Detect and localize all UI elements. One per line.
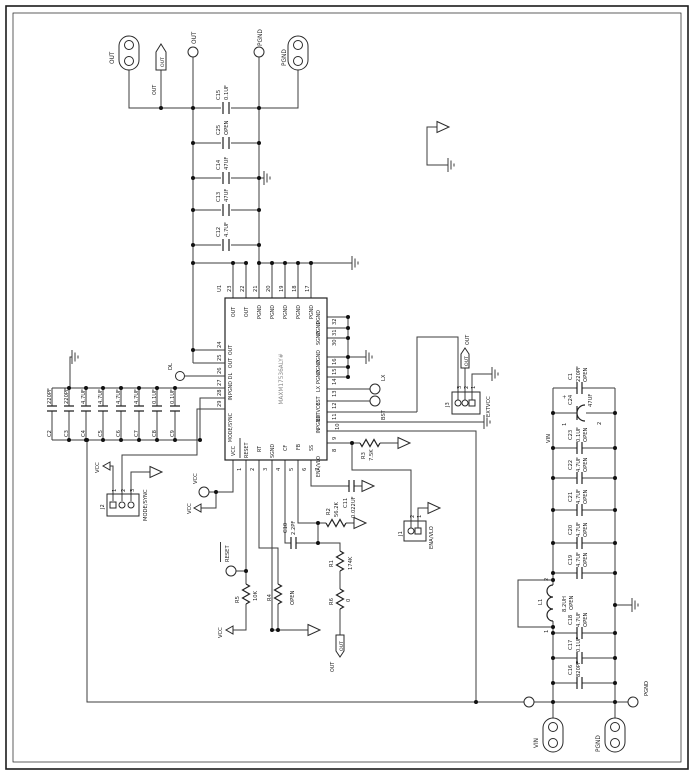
c20-val: 4.7UF: [576, 522, 582, 537]
ic-pin-name: IN: [316, 428, 322, 433]
c6-val: 4.7UF: [116, 389, 122, 404]
junction-dot: [191, 106, 195, 110]
c17-ref: C17: [568, 640, 574, 650]
ic-pin-name: RT: [257, 446, 263, 452]
junction-dot: [270, 261, 274, 265]
ic-pin-name: MODE/SYNC: [228, 412, 234, 442]
ic-pin-num: 29: [217, 400, 223, 407]
ic-pin-name: PGND: [283, 305, 289, 319]
c19-ref: C19: [568, 555, 574, 565]
ic-pin-num: 23: [227, 285, 233, 292]
ic-pin-num: 17: [305, 285, 311, 292]
junction-dot: [613, 508, 617, 512]
c8-val: 0.1UF: [152, 389, 158, 404]
junction-dot: [613, 446, 617, 450]
c13-val: 47UF: [224, 189, 230, 202]
r2-val: 56.2K: [334, 501, 340, 517]
junction-dot: [173, 438, 177, 442]
c16-ref: C16: [568, 665, 574, 675]
c12-val: 4.7UF: [224, 222, 230, 237]
r5-ref: R5: [235, 596, 241, 603]
ic-pin-num: 24: [217, 341, 223, 348]
ic-pin-name: OUT: [244, 307, 250, 317]
c23-val: 0.1UF: [576, 427, 582, 442]
junction-dot: [244, 261, 248, 265]
junction-dot: [346, 375, 350, 379]
header-j3-pin3-num: 3: [457, 386, 463, 389]
junction-dot: [551, 508, 555, 512]
ic-pin-num: 2: [250, 468, 256, 471]
schematic-svg: OUT PGND OUT OUT OUT PGND C15 0.1UF C25 …: [0, 0, 694, 775]
testpoint-lx-label: LX: [381, 374, 387, 381]
ic-pin-num: 18: [292, 285, 298, 292]
l1-val2: OPEN: [569, 596, 575, 610]
junction-dot: [474, 700, 478, 704]
ic-pin-name: IN: [228, 395, 234, 400]
junction-dot: [257, 176, 261, 180]
c25-val: OPEN: [224, 121, 230, 135]
c2-val: 220PF: [47, 388, 53, 404]
ic-pin-num: 32: [332, 318, 338, 325]
c6-ref: C6: [116, 430, 122, 437]
ic-pin-num: 15: [332, 368, 338, 375]
junction-dot: [551, 656, 555, 660]
ic-pin-num: 9: [332, 437, 338, 440]
ic-pin-num: 16: [332, 358, 338, 365]
junction-dot: [613, 656, 617, 660]
junction-dot: [191, 348, 195, 352]
c24-plus: +: [562, 395, 568, 399]
ic-pin-name: RESET: [244, 443, 250, 458]
junction-dot: [84, 438, 88, 442]
header-j1-label: ENA/VLO: [429, 526, 435, 549]
ic-pin-num: 30: [332, 339, 338, 346]
schematic-page: OUT PGND OUT OUT OUT PGND C15 0.1UF C25 …: [0, 0, 694, 775]
c18-ref: C18: [568, 615, 574, 625]
junction-dot: [137, 438, 141, 442]
ic-pin-name: LX: [316, 385, 322, 392]
c19-val2: OPEN: [583, 553, 589, 567]
header-j1-ref: J1: [398, 531, 404, 537]
c12-ref: C12: [216, 227, 222, 237]
junction-dot: [551, 681, 555, 685]
c4-val: 4.7UF: [81, 389, 87, 404]
testpoint-pgnd-label: PGND: [258, 29, 264, 46]
c23-val2: OPEN: [583, 428, 589, 442]
header-j1-pin2-num: 2: [410, 515, 416, 518]
ic-pin-num: 7: [315, 468, 321, 471]
ic-pin-name: PGND: [309, 305, 315, 319]
ic-pin-num: 3: [263, 468, 269, 471]
junction-dot: [257, 141, 261, 145]
c23-ref: C23: [568, 430, 574, 440]
pad-pgnd2-label: PGND: [596, 735, 602, 752]
junction-dot: [551, 700, 555, 704]
junction-dot: [119, 438, 123, 442]
c15-val: 0.1UF: [224, 85, 230, 100]
c16-val: 820PF: [576, 661, 582, 677]
junction-dot: [613, 700, 617, 704]
junction-dot: [191, 176, 195, 180]
c2-ref: C2: [47, 430, 53, 437]
header-j3-label: EXTVCC: [486, 396, 492, 417]
c11-val: 0.022UF: [351, 496, 357, 518]
junction-dot: [316, 541, 320, 545]
c14-val: 47UF: [224, 157, 230, 170]
c25-ref: C25: [216, 125, 222, 135]
junction-dot: [67, 438, 71, 442]
ic-pin-name: PGND: [257, 305, 263, 319]
vin-net-label: VIN: [546, 434, 552, 443]
header-j2-pin1-num: 1: [112, 489, 118, 492]
pad-pgnd-label: PGND: [282, 49, 288, 66]
junction-dot: [101, 438, 105, 442]
junction-dot: [551, 631, 555, 635]
junction-dot: [551, 625, 555, 629]
c19-val: 4.7UF: [576, 552, 582, 567]
junction-dot: [551, 446, 555, 450]
junction-dot: [613, 411, 617, 415]
ic-pin-name: OUT: [228, 345, 234, 355]
r6-ref: R6: [329, 598, 335, 605]
c5-ref: C5: [98, 430, 104, 437]
ic-pin-num: 28: [217, 389, 223, 396]
ic-pin-num: 14: [332, 378, 338, 385]
junction-dot: [346, 315, 350, 319]
pad-vin-label: VIN: [534, 738, 540, 748]
header-j3-ref: J3: [445, 402, 451, 408]
c18-val2: OPEN: [583, 613, 589, 627]
c7-ref: C7: [134, 430, 140, 437]
ic-pin-name: PGND: [228, 381, 234, 395]
testpoint-dl-label: DL: [168, 363, 174, 370]
ic-pin-num: 8: [332, 449, 338, 452]
ic-pin-name: CF: [283, 445, 289, 451]
c5-val: 4.7UF: [98, 389, 104, 404]
ic-pin-name: SGND: [270, 444, 276, 458]
ic-pin-num: 5: [289, 468, 295, 471]
ic-pin-num: 26: [217, 367, 223, 374]
testpoint-pgnd-filter-label: PGND: [644, 681, 650, 696]
c1-val2: OPEN: [583, 368, 589, 382]
c7-val: 4.7UF: [134, 389, 140, 404]
ic-pin-name: OUT: [231, 307, 237, 317]
ic-pin-name: SS: [309, 445, 315, 451]
junction-dot: [296, 261, 300, 265]
ic-pin-num: 21: [253, 285, 259, 292]
c18-val: 4.7UF: [576, 612, 582, 627]
ic-pin-name: ENA/VLO: [316, 456, 322, 477]
vcc-label-tp: VCC: [187, 503, 193, 514]
out-flag-j3-netlabel: OUT: [465, 335, 471, 345]
junction-dot: [244, 569, 248, 573]
ic-pin-num: 31: [332, 329, 338, 336]
header-j2-pin3-num: 3: [130, 489, 136, 492]
c10-val: 2.2PF: [291, 521, 297, 535]
ic-pin-name: PGND: [316, 415, 322, 429]
ic-pin-name: DL: [228, 372, 234, 379]
ic-pin-num: 22: [240, 285, 246, 292]
junction-dot: [257, 243, 261, 247]
ic-pin-num: 12: [332, 402, 338, 409]
c24-pin1: 1: [562, 423, 568, 426]
c20-ref: C20: [568, 525, 574, 535]
c24-ref: C24: [568, 394, 574, 405]
junction-dot: [613, 476, 617, 480]
c13-ref: C13: [216, 192, 222, 202]
c22-ref: C22: [568, 460, 574, 470]
out-flag-top-text: OUT: [160, 57, 166, 67]
junction-dot: [191, 243, 195, 247]
junction-dot: [551, 541, 555, 545]
c21-val2: OPEN: [583, 490, 589, 504]
c9-ref: C9: [170, 430, 176, 437]
junction-dot: [191, 261, 195, 265]
header-j3-pin1-num: 1: [471, 386, 477, 389]
c22-val2: OPEN: [583, 458, 589, 472]
out-flag-fb-text: OUT: [339, 641, 345, 651]
r1-val: 174K: [348, 556, 354, 570]
header-j1-pin1-num: 1: [417, 515, 423, 518]
c21-val: 4.7UF: [576, 489, 582, 504]
ic-pin-name: FB: [296, 444, 302, 450]
testpoint-out-label: OUT: [192, 31, 198, 44]
testpoint-bst-label: BST: [381, 409, 387, 420]
c14-ref: C14: [216, 159, 222, 170]
header-j2-pin2-num: 2: [121, 489, 127, 492]
junction-dot: [613, 571, 617, 575]
junction-dot: [198, 438, 202, 442]
ic-pin-num: 20: [266, 285, 272, 292]
ic-pin-num: 1: [237, 468, 243, 471]
junction-dot: [346, 336, 350, 340]
c24-pin2: 2: [597, 422, 603, 425]
c21-ref: C21: [568, 492, 574, 502]
c10-ref: C10: [283, 523, 289, 533]
r1-ref: R1: [329, 560, 335, 567]
junction-dot: [551, 476, 555, 480]
junction-dot: [613, 541, 617, 545]
r4-val: OPEN: [290, 591, 296, 605]
ic-pin-name: VCC: [231, 445, 237, 456]
ic-pin-num: 19: [279, 285, 285, 292]
ic-pin-name: OUT: [228, 358, 234, 368]
junction-dot: [613, 681, 617, 685]
ic-pin-num: 10: [335, 423, 341, 430]
vcc-label-j2: VCC: [95, 462, 101, 473]
junction-dot: [551, 411, 555, 415]
c20-val2: OPEN: [583, 523, 589, 537]
junction-dot: [231, 261, 235, 265]
l1-pin2: 2: [544, 578, 550, 581]
l1-ref: L1: [538, 599, 544, 605]
r3-ref: R3: [361, 452, 367, 459]
junction-dot: [551, 578, 555, 582]
c11-ref: C11: [343, 498, 349, 508]
out-flag-j3-text: OUT: [464, 356, 470, 366]
ic-pin-num: 13: [332, 390, 338, 397]
vcc-label-r5: VCC: [218, 627, 224, 638]
junction-dot: [214, 490, 218, 494]
ic-pin-name: PGND: [316, 370, 322, 384]
junction-dot: [191, 141, 195, 145]
junction-dot: [257, 261, 261, 265]
junction-dot: [257, 208, 261, 212]
ic-pin-num: 27: [217, 379, 223, 386]
junction-dot: [276, 628, 280, 632]
junction-dot: [346, 365, 350, 369]
r4-ref: R4: [267, 593, 273, 601]
junction-dot: [191, 208, 195, 212]
junction-dot: [257, 106, 261, 110]
c17-val: 0.1UF: [576, 637, 582, 652]
r3-val: 7.5K: [369, 449, 375, 461]
header-j2-ref: J2: [100, 504, 106, 510]
c24-val: 47UF: [588, 394, 594, 407]
l1-val: 8.2UH: [562, 596, 568, 612]
testpoint-vcc-label: VCC: [193, 473, 199, 484]
testpoint-reset-label: RESET: [225, 545, 231, 562]
l1-pin1: 1: [544, 630, 550, 633]
junction-dot: [346, 355, 350, 359]
ic-part-number: MAXM17536ALY#: [279, 353, 285, 404]
c4-ref: C4: [81, 429, 87, 437]
junction-dot: [350, 441, 354, 445]
junction-dot: [316, 521, 320, 525]
c15-ref: C15: [216, 90, 222, 100]
junction-dot: [155, 438, 159, 442]
out-flag-top-netlabel: OUT: [152, 85, 158, 95]
junction-dot: [551, 571, 555, 575]
ic-pin-name: PGND: [296, 305, 302, 319]
junction-dot: [270, 628, 274, 632]
ic-pin-name: SGND: [316, 331, 322, 345]
r2-ref: R2: [326, 508, 332, 515]
header-j3-pin2-num: 2: [464, 386, 470, 389]
pad-out-label: OUT: [110, 51, 116, 64]
r5-val: 10K: [253, 590, 259, 601]
junction-dot: [309, 261, 313, 265]
r6-val: 0: [346, 599, 352, 602]
c1-ref: C1: [568, 373, 574, 380]
ic-pin-num: 11: [332, 413, 338, 420]
c9-val: 0.1UF: [170, 389, 176, 404]
c22-val: 4.7UF: [576, 457, 582, 472]
junction-dot: [283, 261, 287, 265]
header-j2-label: MODE/SYNC: [143, 489, 149, 521]
c3-val: 220PF: [64, 388, 70, 404]
c1-val: 220PF: [576, 366, 582, 382]
junction-dot: [159, 106, 163, 110]
ic-pin-num: 25: [217, 354, 223, 361]
c8-ref: C8: [152, 430, 158, 437]
c3-ref: C3: [64, 430, 70, 437]
junction-dot: [613, 603, 617, 607]
ic-pin-num: 6: [302, 468, 308, 471]
out-flag-fb-netlabel: OUT: [330, 662, 336, 672]
junction-dot: [613, 631, 617, 635]
ic-pin-name: PGND: [270, 305, 276, 319]
junction-dot: [346, 326, 350, 330]
ic-ref: U1: [217, 285, 223, 292]
